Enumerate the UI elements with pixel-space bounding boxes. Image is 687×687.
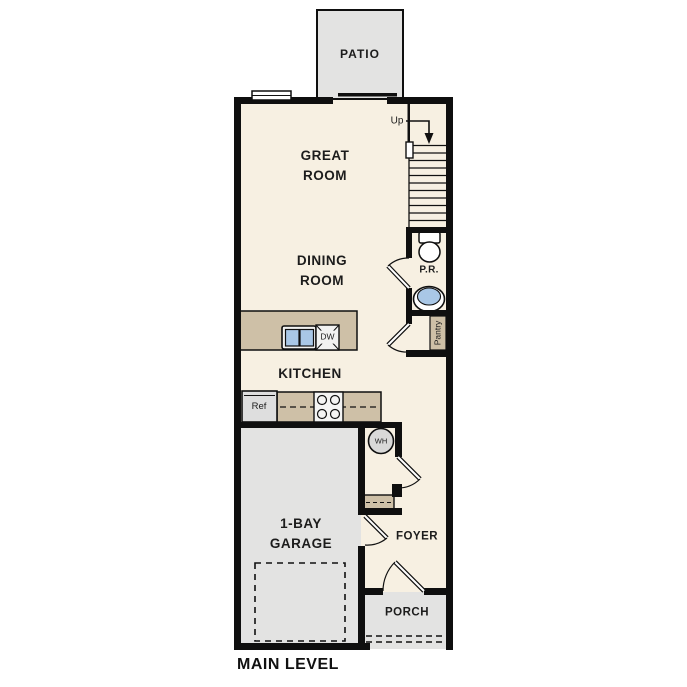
toilet-icon bbox=[419, 232, 440, 262]
window bbox=[252, 91, 291, 100]
great-room-line1: GREAT bbox=[301, 146, 350, 166]
dining-room-line2: ROOM bbox=[297, 271, 347, 291]
island-sink-icon bbox=[282, 326, 316, 349]
dining-room-label: DINING ROOM bbox=[297, 251, 347, 292]
garage-label: 1-BAY GARAGE bbox=[270, 514, 332, 555]
stairs-up-label: Up bbox=[391, 114, 404, 129]
dining-room-line1: DINING bbox=[297, 251, 347, 271]
kitchen-label: KITCHEN bbox=[278, 364, 342, 384]
porch-label: PORCH bbox=[385, 604, 429, 621]
level-title: MAIN LEVEL bbox=[237, 656, 339, 674]
sliding-door bbox=[338, 93, 397, 97]
powder-room-label: P.R. bbox=[419, 263, 438, 278]
floorplan-page: PATIO GREAT ROOM DINING ROOM KITCHEN 1-B… bbox=[0, 0, 687, 687]
water-heater-label: WH bbox=[375, 435, 388, 446]
patio-label: PATIO bbox=[340, 45, 380, 63]
foyer-label: FOYER bbox=[396, 528, 438, 545]
great-room-line2: ROOM bbox=[301, 166, 350, 186]
vanity-sink-icon bbox=[414, 287, 445, 312]
garage-line1: 1-BAY bbox=[270, 514, 332, 534]
floorplan-canvas bbox=[0, 0, 687, 687]
foyer-closet-shelf bbox=[364, 495, 394, 510]
garage-line2: GARAGE bbox=[270, 534, 332, 554]
pantry-label: Pantry bbox=[432, 321, 445, 346]
dishwasher-label: DW bbox=[319, 331, 335, 344]
refrigerator-label: Ref bbox=[252, 400, 267, 414]
great-room-label: GREAT ROOM bbox=[301, 146, 350, 187]
range-icon bbox=[314, 392, 343, 422]
